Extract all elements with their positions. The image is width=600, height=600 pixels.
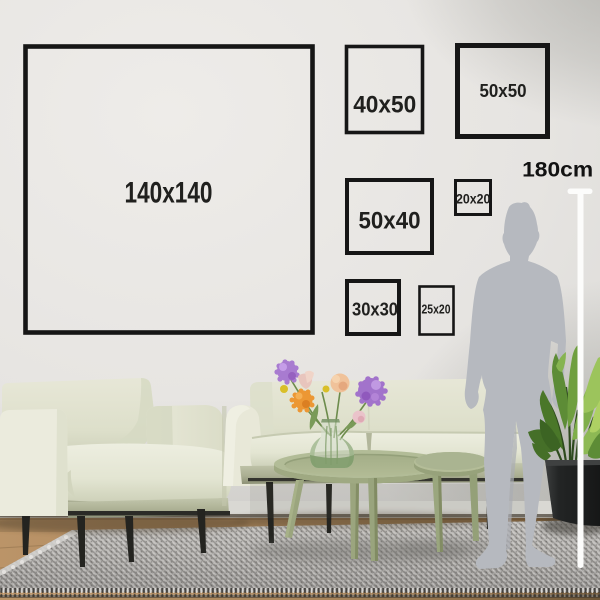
svg-text:180cm: 180cm bbox=[522, 159, 593, 182]
svg-text:50x50: 50x50 bbox=[480, 80, 527, 101]
svg-text:25x20: 25x20 bbox=[422, 302, 451, 317]
svg-text:50x40: 50x40 bbox=[359, 207, 421, 234]
svg-text:20x20: 20x20 bbox=[456, 191, 491, 206]
svg-text:140x140: 140x140 bbox=[125, 177, 213, 210]
svg-text:40x50: 40x50 bbox=[353, 92, 416, 119]
svg-text:30x30: 30x30 bbox=[352, 300, 398, 320]
